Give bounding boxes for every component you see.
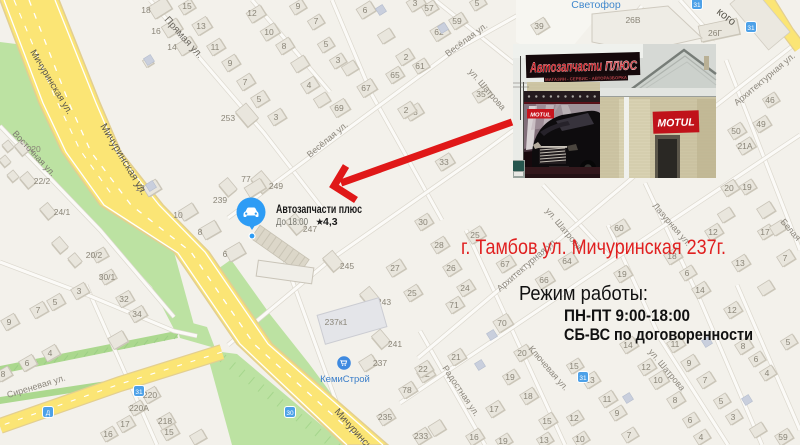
svg-text:18: 18 (141, 5, 151, 15)
svg-text:25: 25 (407, 288, 417, 298)
svg-text:5: 5 (324, 39, 329, 49)
svg-text:5: 5 (786, 337, 791, 347)
svg-text:9: 9 (687, 358, 692, 368)
svg-text:8: 8 (1, 369, 6, 379)
svg-text:5: 5 (719, 396, 724, 406)
svg-text:ПЛЮС: ПЛЮС (605, 58, 638, 74)
svg-text:Режим работы:: Режим работы: (519, 283, 648, 305)
svg-text:8: 8 (673, 395, 678, 405)
svg-text:31: 31 (135, 389, 143, 396)
svg-text:31: 31 (579, 375, 587, 382)
svg-text:4: 4 (765, 368, 770, 378)
svg-text:31: 31 (747, 25, 755, 32)
svg-text:15: 15 (542, 416, 552, 426)
svg-text:5: 5 (53, 297, 58, 307)
svg-text:57: 57 (424, 3, 434, 13)
svg-text:5: 5 (475, 0, 480, 8)
svg-text:10: 10 (173, 210, 183, 220)
svg-text:49: 49 (756, 119, 766, 129)
svg-text:8: 8 (198, 227, 203, 237)
svg-text:9: 9 (228, 58, 233, 68)
svg-text:17: 17 (760, 227, 770, 237)
svg-text:20: 20 (517, 348, 527, 358)
svg-text:7: 7 (36, 305, 41, 315)
svg-text:65: 65 (390, 70, 400, 80)
svg-text:2: 2 (404, 105, 409, 115)
svg-text:12: 12 (727, 305, 737, 315)
svg-text:3: 3 (77, 286, 82, 296)
svg-text:34: 34 (132, 309, 142, 319)
svg-text:220: 220 (143, 390, 157, 400)
svg-text:235: 235 (378, 412, 392, 422)
svg-text:г. Тамбов ул. Мичуринская 237г: г. Тамбов ул. Мичуринская 237г. (461, 236, 726, 259)
svg-text:СБ-ВС по договоренности: СБ-ВС по договоренности (564, 326, 753, 344)
svg-text:4: 4 (48, 348, 53, 358)
svg-text:13: 13 (196, 21, 206, 31)
svg-text:12: 12 (569, 413, 579, 423)
svg-text:ПН-ПТ 9:00-18:00: ПН-ПТ 9:00-18:00 (564, 307, 690, 325)
svg-text:КемиСтрой: КемиСтрой (320, 374, 370, 385)
svg-text:46: 46 (765, 95, 775, 105)
svg-text:59: 59 (452, 16, 462, 26)
svg-text:67: 67 (500, 259, 510, 269)
svg-text:19: 19 (498, 436, 508, 445)
svg-text:Автозапчасти плюс: Автозапчасти плюс (276, 202, 362, 216)
svg-text:6: 6 (754, 354, 759, 364)
svg-text:6: 6 (363, 5, 368, 15)
svg-text:16: 16 (103, 429, 113, 439)
svg-text:39: 39 (534, 21, 544, 31)
svg-text:11: 11 (603, 394, 612, 404)
svg-text:21: 21 (451, 352, 461, 362)
svg-text:70: 70 (497, 318, 507, 328)
svg-text:6: 6 (25, 358, 30, 368)
svg-text:14: 14 (695, 285, 705, 295)
svg-text:19: 19 (742, 182, 752, 192)
svg-text:MOTUL: MOTUL (657, 116, 695, 129)
svg-text:17: 17 (120, 419, 130, 429)
svg-text:20/2: 20/2 (86, 250, 103, 260)
svg-text:249: 249 (269, 181, 283, 191)
svg-text:7: 7 (314, 16, 319, 26)
svg-text:7: 7 (783, 253, 788, 263)
svg-text:32: 32 (119, 294, 129, 304)
svg-text:2: 2 (404, 52, 409, 62)
svg-text:4,3: 4,3 (323, 216, 338, 228)
svg-text:MOTUL: MOTUL (530, 112, 551, 118)
svg-text:16: 16 (151, 26, 161, 36)
svg-text:237: 237 (373, 358, 387, 368)
svg-text:33: 33 (439, 157, 449, 167)
svg-text:10: 10 (653, 375, 663, 385)
svg-text:26: 26 (446, 263, 456, 273)
svg-text:15: 15 (182, 1, 192, 11)
svg-text:253: 253 (221, 113, 235, 123)
svg-text:4: 4 (307, 80, 312, 90)
svg-text:24: 24 (460, 283, 470, 293)
svg-text:4: 4 (699, 432, 704, 442)
svg-text:220А: 220А (129, 403, 149, 413)
svg-text:16: 16 (469, 432, 479, 442)
svg-text:8: 8 (282, 41, 287, 51)
svg-text:20: 20 (724, 183, 734, 193)
svg-text:27: 27 (390, 263, 400, 273)
svg-text:3: 3 (731, 412, 736, 422)
svg-text:9: 9 (615, 408, 620, 418)
svg-text:Светофор: Светофор (571, 0, 621, 11)
svg-text:19: 19 (617, 269, 627, 279)
svg-text:12: 12 (247, 8, 257, 18)
svg-text:9: 9 (7, 317, 12, 327)
svg-text:21А: 21А (737, 141, 752, 151)
svg-text:Д: Д (46, 410, 51, 417)
svg-text:241: 241 (388, 339, 402, 349)
svg-text:14: 14 (167, 42, 177, 52)
svg-text:10: 10 (575, 434, 585, 444)
svg-text:15: 15 (569, 361, 579, 371)
svg-text:78: 78 (402, 385, 412, 395)
svg-text:9: 9 (296, 1, 301, 11)
svg-text:218: 218 (158, 416, 172, 426)
svg-text:13: 13 (735, 258, 745, 268)
svg-text:22/2: 22/2 (34, 176, 51, 186)
svg-text:12: 12 (641, 362, 651, 372)
svg-text:61: 61 (415, 61, 425, 71)
svg-text:30: 30 (418, 217, 428, 227)
svg-text:26В: 26В (625, 15, 640, 25)
svg-text:22: 22 (418, 364, 428, 374)
svg-text:7: 7 (243, 77, 248, 87)
svg-text:237к1: 237к1 (325, 317, 348, 327)
svg-text:3: 3 (274, 112, 279, 122)
svg-text:Автозапчасти: Автозапчасти (529, 59, 602, 77)
svg-text:7: 7 (627, 430, 632, 440)
svg-text:28: 28 (434, 240, 444, 250)
svg-text:77: 77 (241, 174, 251, 184)
svg-text:69: 69 (334, 103, 344, 113)
svg-text:6: 6 (685, 268, 690, 278)
svg-text:19: 19 (505, 372, 515, 382)
svg-text:11: 11 (211, 42, 220, 52)
svg-text:5: 5 (257, 94, 262, 104)
svg-text:18: 18 (523, 391, 533, 401)
svg-text:17: 17 (489, 404, 499, 414)
svg-text:7: 7 (703, 375, 708, 385)
svg-text:3: 3 (413, 0, 418, 8)
svg-text:239: 239 (213, 195, 227, 205)
svg-text:31: 31 (693, 2, 701, 9)
svg-text:До 18:00: До 18:00 (276, 217, 308, 228)
svg-text:26Г: 26Г (708, 28, 722, 38)
svg-text:24/1: 24/1 (54, 207, 71, 217)
svg-text:6: 6 (223, 249, 228, 259)
svg-text:3: 3 (336, 55, 341, 65)
svg-text:71: 71 (449, 300, 459, 310)
svg-text:67: 67 (361, 83, 371, 93)
svg-text:6: 6 (688, 415, 693, 425)
svg-text:245: 245 (340, 261, 354, 271)
svg-text:60: 60 (614, 223, 624, 233)
svg-text:30: 30 (286, 410, 294, 417)
svg-text:13: 13 (539, 435, 549, 445)
svg-text:50: 50 (731, 126, 741, 136)
svg-text:10: 10 (264, 27, 274, 37)
svg-text:233: 233 (414, 431, 428, 441)
svg-text:59: 59 (778, 432, 788, 442)
svg-text:30/1: 30/1 (99, 272, 116, 282)
